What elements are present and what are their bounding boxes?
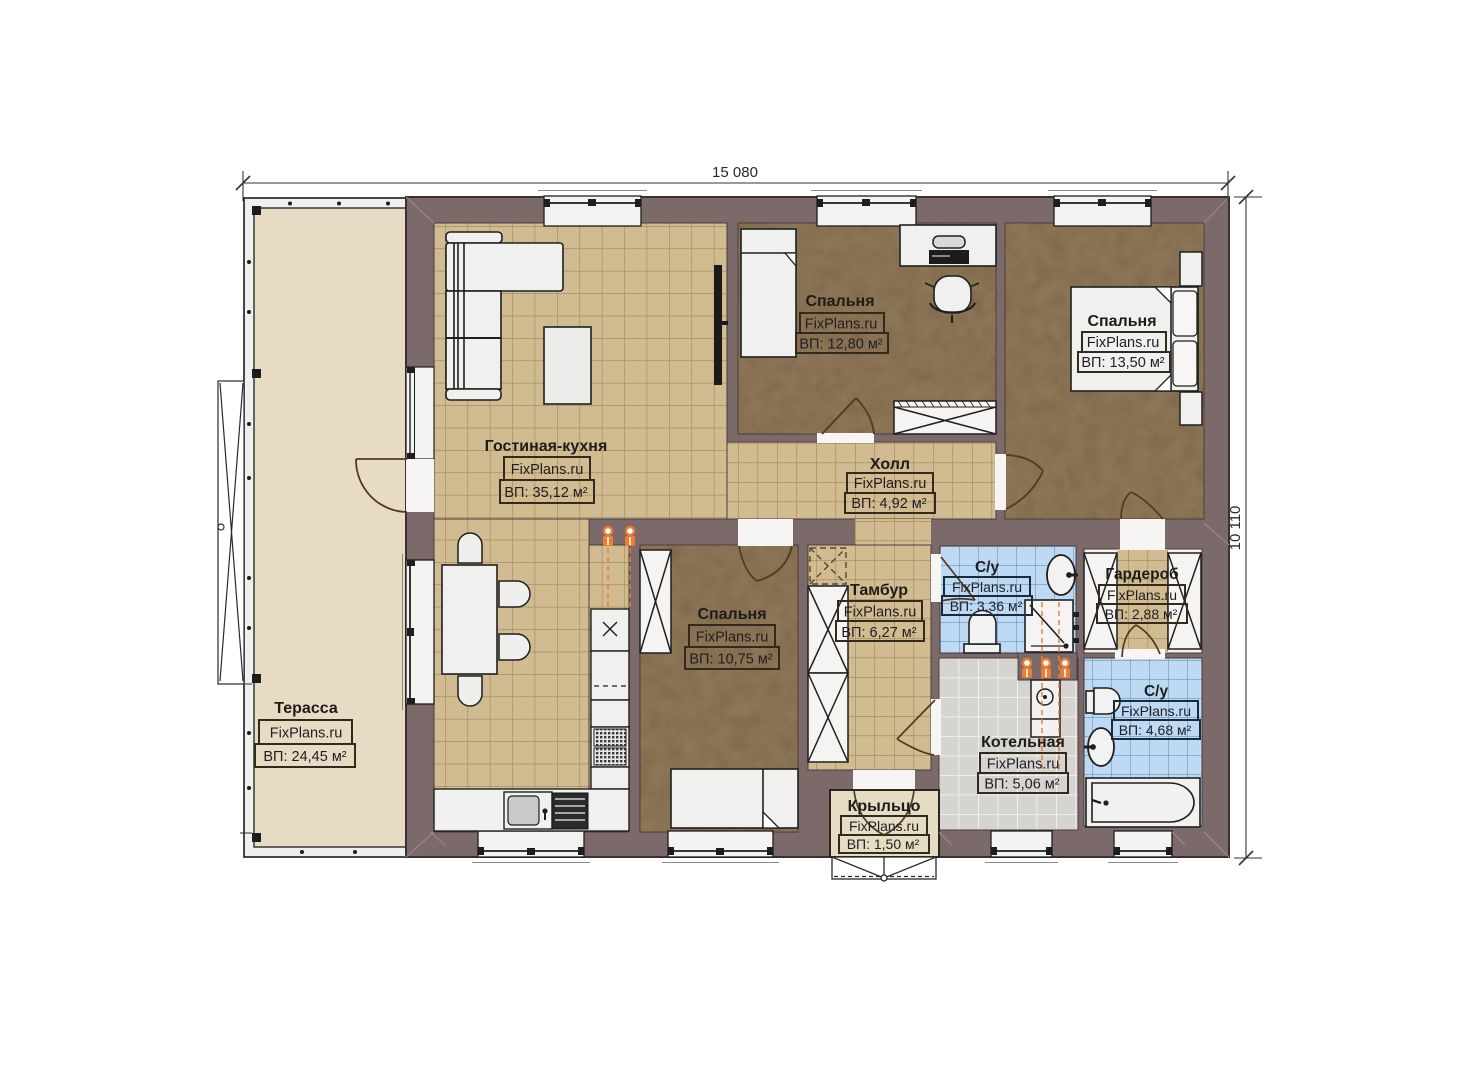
svg-text:ВП: 3,36 м²: ВП: 3,36 м²: [950, 598, 1023, 614]
svg-text:ВП: 12,80 м²: ВП: 12,80 м²: [799, 337, 882, 353]
svg-text:FixPlans.ru: FixPlans.ru: [952, 579, 1022, 595]
svg-text:ВП: 2,88 м²: ВП: 2,88 м²: [1105, 606, 1178, 622]
svg-text:Терасса: Терасса: [274, 700, 338, 717]
svg-text:ВП: 4,92 м²: ВП: 4,92 м²: [851, 496, 926, 512]
svg-text:FixPlans.ru: FixPlans.ru: [844, 605, 917, 621]
svg-text:ВП: 1,50 м²: ВП: 1,50 м²: [847, 836, 920, 852]
svg-text:Котельная: Котельная: [981, 734, 1065, 751]
svg-text:10 110: 10 110: [1227, 506, 1244, 551]
svg-text:С/у: С/у: [975, 559, 1000, 576]
svg-text:Гардероб: Гардероб: [1105, 566, 1178, 583]
svg-text:Тамбур: Тамбур: [850, 582, 908, 599]
svg-text:FixPlans.ru: FixPlans.ru: [987, 757, 1060, 773]
svg-text:FixPlans.ru: FixPlans.ru: [805, 317, 878, 333]
svg-text:ВП: 4,68 м²: ВП: 4,68 м²: [1119, 722, 1192, 738]
svg-text:ВП: 10,75 м²: ВП: 10,75 м²: [689, 652, 772, 668]
svg-text:15 080: 15 080: [712, 164, 758, 181]
svg-text:ВП: 13,50 м²: ВП: 13,50 м²: [1081, 355, 1164, 371]
svg-text:FixPlans.ru: FixPlans.ru: [1121, 703, 1191, 719]
svg-text:FixPlans.ru: FixPlans.ru: [1087, 335, 1160, 351]
svg-text:ВП: 35,12 м²: ВП: 35,12 м²: [504, 485, 587, 501]
svg-text:FixPlans.ru: FixPlans.ru: [511, 462, 584, 478]
svg-text:FixPlans.ru: FixPlans.ru: [1107, 587, 1177, 603]
svg-text:Спальня: Спальня: [805, 293, 874, 310]
svg-text:FixPlans.ru: FixPlans.ru: [270, 726, 343, 742]
svg-text:FixPlans.ru: FixPlans.ru: [854, 476, 927, 492]
svg-text:ВП: 6,27 м²: ВП: 6,27 м²: [841, 625, 916, 641]
svg-text:ВП: 5,06 м²: ВП: 5,06 м²: [984, 777, 1059, 793]
svg-text:Спальня: Спальня: [697, 606, 766, 623]
svg-text:С/у: С/у: [1144, 683, 1169, 700]
svg-text:Холл: Холл: [870, 456, 910, 473]
svg-text:ВП: 24,45 м²: ВП: 24,45 м²: [263, 749, 346, 765]
svg-text:FixPlans.ru: FixPlans.ru: [849, 818, 919, 834]
svg-text:Крыльцо: Крыльцо: [848, 798, 921, 815]
svg-text:Гостиная-кухня: Гостиная-кухня: [485, 438, 608, 455]
svg-text:Спальня: Спальня: [1087, 313, 1156, 330]
svg-text:FixPlans.ru: FixPlans.ru: [696, 630, 769, 646]
